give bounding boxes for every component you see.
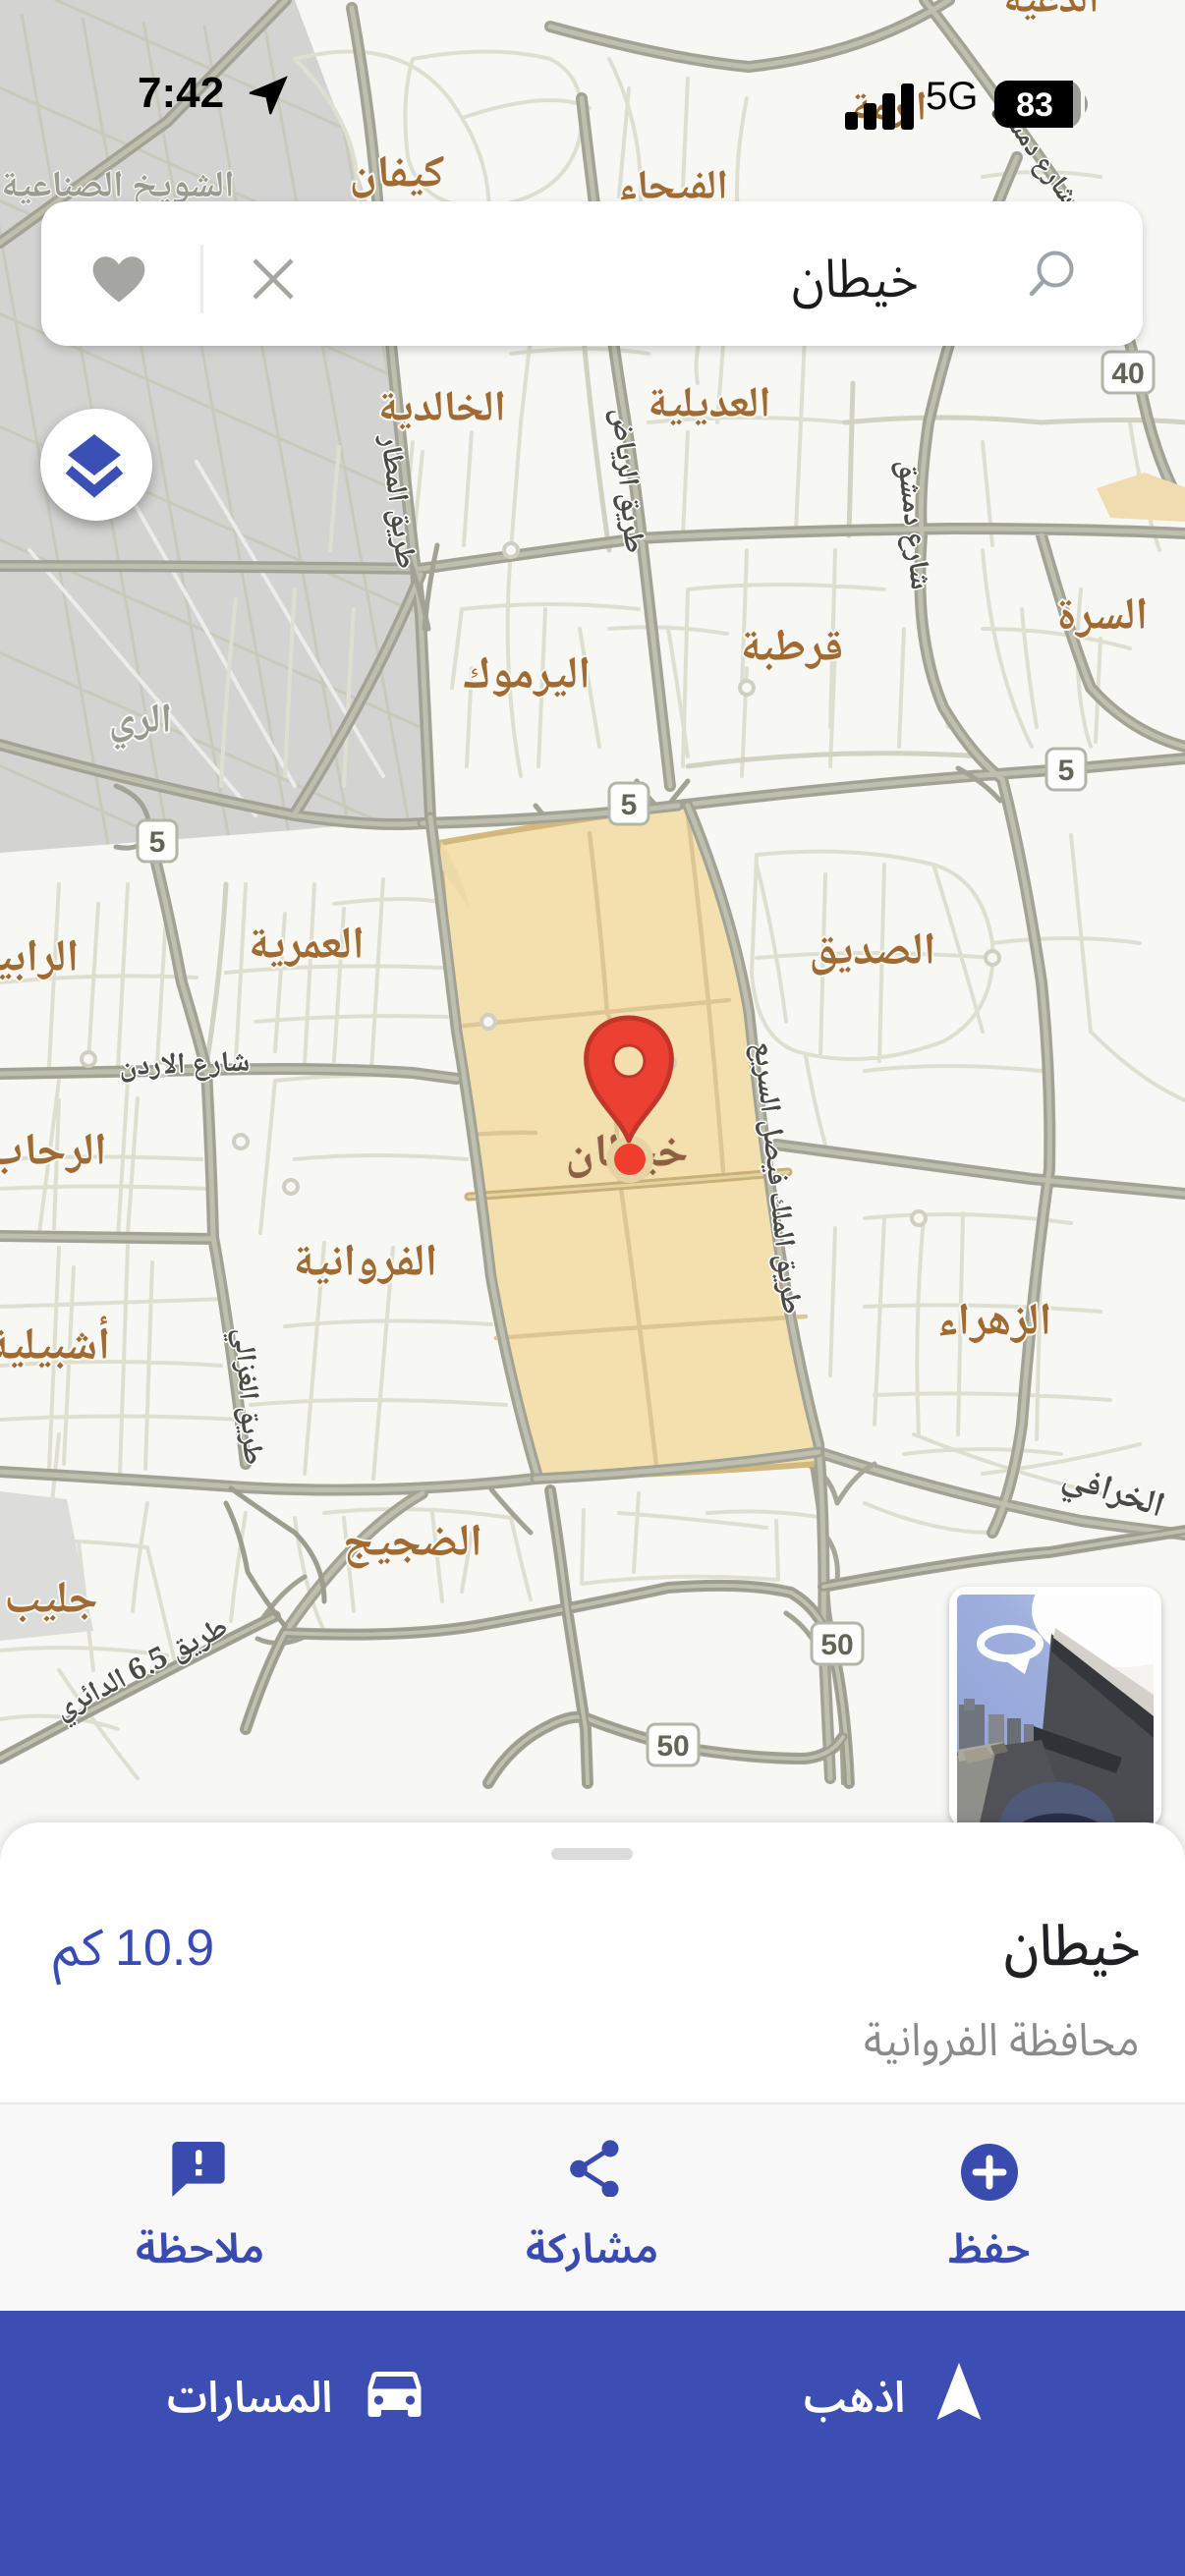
svg-text:5: 5 [621,789,638,821]
svg-text:40: 40 [1111,358,1144,390]
svg-text:10.9: 10.9 [115,1920,214,1977]
svg-text:50: 50 [656,1730,689,1763]
svg-text:50: 50 [820,1629,853,1661]
svg-text:83: 83 [1016,86,1053,124]
svg-text:5: 5 [149,826,166,859]
svg-text:5: 5 [1058,755,1075,787]
